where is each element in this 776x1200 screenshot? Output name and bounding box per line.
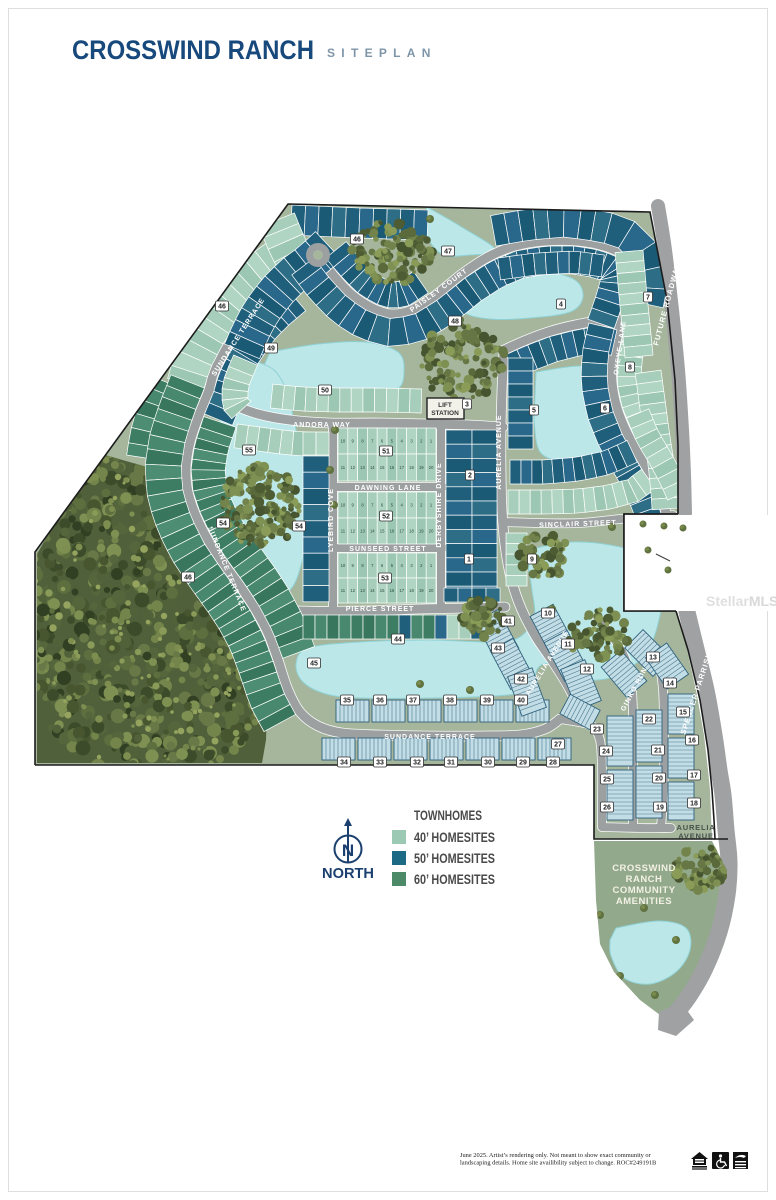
svg-text:13: 13 xyxy=(360,465,365,470)
svg-text:14: 14 xyxy=(370,465,375,470)
svg-text:27: 27 xyxy=(554,742,562,749)
svg-text:25: 25 xyxy=(603,777,611,784)
svg-text:19: 19 xyxy=(419,529,424,534)
svg-text:35: 35 xyxy=(343,698,351,705)
svg-text:18: 18 xyxy=(690,801,698,808)
svg-text:LYEBIRD COVE: LYEBIRD COVE xyxy=(328,488,335,552)
svg-text:34: 34 xyxy=(340,760,348,767)
svg-text:NORTH: NORTH xyxy=(322,865,374,882)
svg-text:37: 37 xyxy=(409,698,417,705)
svg-text:20: 20 xyxy=(429,465,434,470)
svg-text:17: 17 xyxy=(399,465,404,470)
svg-text:AVENUE: AVENUE xyxy=(678,832,714,841)
svg-text:20: 20 xyxy=(429,588,434,593)
svg-text:30: 30 xyxy=(484,760,492,767)
svg-text:10: 10 xyxy=(544,611,552,618)
svg-text:COMMUNITY: COMMUNITY xyxy=(612,885,675,896)
svg-text:19: 19 xyxy=(419,588,424,593)
svg-text:38: 38 xyxy=(446,698,454,705)
svg-text:DERBYSHIRE DRIVE: DERBYSHIRE DRIVE xyxy=(436,462,443,547)
svg-text:54: 54 xyxy=(295,524,303,531)
svg-text:40’ HOMESITES: 40’ HOMESITES xyxy=(414,829,495,845)
svg-text:23: 23 xyxy=(593,727,601,734)
svg-text:landscaping details. Home sit: landscaping details. Home site availibil… xyxy=(460,1160,656,1167)
svg-text:9: 9 xyxy=(530,557,534,564)
svg-text:16: 16 xyxy=(390,465,395,470)
svg-text:15: 15 xyxy=(380,529,385,534)
svg-text:16: 16 xyxy=(688,738,696,745)
svg-text:19: 19 xyxy=(419,465,424,470)
svg-text:14: 14 xyxy=(370,529,375,534)
svg-text:14: 14 xyxy=(666,681,674,688)
svg-text:RANCH: RANCH xyxy=(626,874,663,885)
svg-text:33: 33 xyxy=(376,760,384,767)
svg-text:SITEPLAN: SITEPLAN xyxy=(327,46,437,60)
svg-text:48: 48 xyxy=(451,319,459,326)
svg-text:TOWNHOMES: TOWNHOMES xyxy=(414,807,482,823)
svg-text:46: 46 xyxy=(218,304,226,311)
svg-text:1: 1 xyxy=(467,557,471,564)
svg-text:2: 2 xyxy=(468,473,472,480)
svg-text:AURELIA AVENUE: AURELIA AVENUE xyxy=(496,414,503,489)
svg-text:11: 11 xyxy=(341,529,346,534)
svg-text:31: 31 xyxy=(447,760,455,767)
svg-text:20: 20 xyxy=(429,529,434,534)
svg-text:13: 13 xyxy=(360,588,365,593)
svg-text:15: 15 xyxy=(679,710,687,717)
svg-text:26: 26 xyxy=(603,805,611,812)
svg-text:46: 46 xyxy=(184,575,192,582)
svg-text:11: 11 xyxy=(341,465,346,470)
svg-text:ANDORA WAY: ANDORA WAY xyxy=(293,422,351,429)
svg-text:17: 17 xyxy=(690,773,698,780)
svg-text:10: 10 xyxy=(341,503,346,508)
svg-text:PIERCE STREET: PIERCE STREET xyxy=(346,606,415,613)
svg-text:12: 12 xyxy=(350,588,355,593)
svg-text:14: 14 xyxy=(370,588,375,593)
svg-text:11: 11 xyxy=(564,642,572,649)
svg-text:18: 18 xyxy=(409,529,414,534)
svg-text:4: 4 xyxy=(559,302,563,309)
svg-text:7: 7 xyxy=(646,295,650,302)
svg-text:51: 51 xyxy=(382,449,390,456)
svg-text:11: 11 xyxy=(341,588,346,593)
svg-text:15: 15 xyxy=(380,465,385,470)
svg-text:18: 18 xyxy=(409,465,414,470)
svg-text:17: 17 xyxy=(399,588,404,593)
svg-text:39: 39 xyxy=(483,698,491,705)
svg-text:6: 6 xyxy=(603,406,607,413)
svg-text:June 2025. Artist’s rendering: June 2025. Artist’s rendering only. Not … xyxy=(460,1152,652,1159)
svg-text:13: 13 xyxy=(360,529,365,534)
svg-text:46: 46 xyxy=(353,237,361,244)
svg-text:45: 45 xyxy=(310,661,318,668)
svg-text:20: 20 xyxy=(655,776,663,783)
svg-text:32: 32 xyxy=(413,760,421,767)
svg-text:STATION: STATION xyxy=(431,410,459,417)
svg-text:18: 18 xyxy=(409,588,414,593)
svg-text:43: 43 xyxy=(494,646,502,653)
svg-text:50: 50 xyxy=(321,388,329,395)
svg-text:22: 22 xyxy=(645,717,653,724)
svg-text:12: 12 xyxy=(350,529,355,534)
svg-text:52: 52 xyxy=(382,514,390,521)
svg-text:49: 49 xyxy=(267,346,275,353)
svg-text:55: 55 xyxy=(245,448,253,455)
svg-text:36: 36 xyxy=(376,698,384,705)
svg-text:42: 42 xyxy=(517,677,525,684)
svg-text:CROSSWIND: CROSSWIND xyxy=(612,863,676,874)
svg-text:5: 5 xyxy=(532,408,536,415)
svg-text:50’ HOMESITES: 50’ HOMESITES xyxy=(414,850,495,866)
svg-text:54: 54 xyxy=(219,521,227,528)
svg-text:DAWNING LANE: DAWNING LANE xyxy=(355,485,422,492)
svg-text:AMENITIES: AMENITIES xyxy=(616,896,672,907)
svg-text:10: 10 xyxy=(341,439,346,444)
svg-text:12: 12 xyxy=(350,465,355,470)
svg-text:47: 47 xyxy=(444,249,452,256)
svg-text:3: 3 xyxy=(465,402,469,409)
svg-text:CROSSWIND RANCH: CROSSWIND RANCH xyxy=(72,35,314,65)
svg-text:10: 10 xyxy=(341,563,346,568)
svg-text:53: 53 xyxy=(381,576,389,583)
svg-text:LIFT: LIFT xyxy=(438,402,452,409)
svg-text:19: 19 xyxy=(656,805,664,812)
svg-text:SUNDANCE TERRACE: SUNDANCE TERRACE xyxy=(384,734,475,741)
svg-text:13: 13 xyxy=(649,655,657,662)
svg-text:60’ HOMESITES: 60’ HOMESITES xyxy=(414,871,495,887)
svg-text:N: N xyxy=(342,841,354,860)
svg-text:8: 8 xyxy=(628,365,632,372)
svg-text:29: 29 xyxy=(519,760,527,767)
svg-text:15: 15 xyxy=(380,588,385,593)
svg-text:40: 40 xyxy=(517,698,525,705)
svg-text:24: 24 xyxy=(602,749,610,756)
svg-text:28: 28 xyxy=(549,760,557,767)
svg-text:44: 44 xyxy=(394,637,402,644)
svg-text:16: 16 xyxy=(390,588,395,593)
svg-text:StellarMLS: StellarMLS xyxy=(706,593,776,609)
svg-text:41: 41 xyxy=(504,619,512,626)
svg-text:SUNSEED STREET: SUNSEED STREET xyxy=(349,546,426,553)
svg-text:16: 16 xyxy=(390,529,395,534)
svg-text:21: 21 xyxy=(654,748,662,755)
svg-text:17: 17 xyxy=(399,529,404,534)
svg-text:12: 12 xyxy=(583,667,591,674)
